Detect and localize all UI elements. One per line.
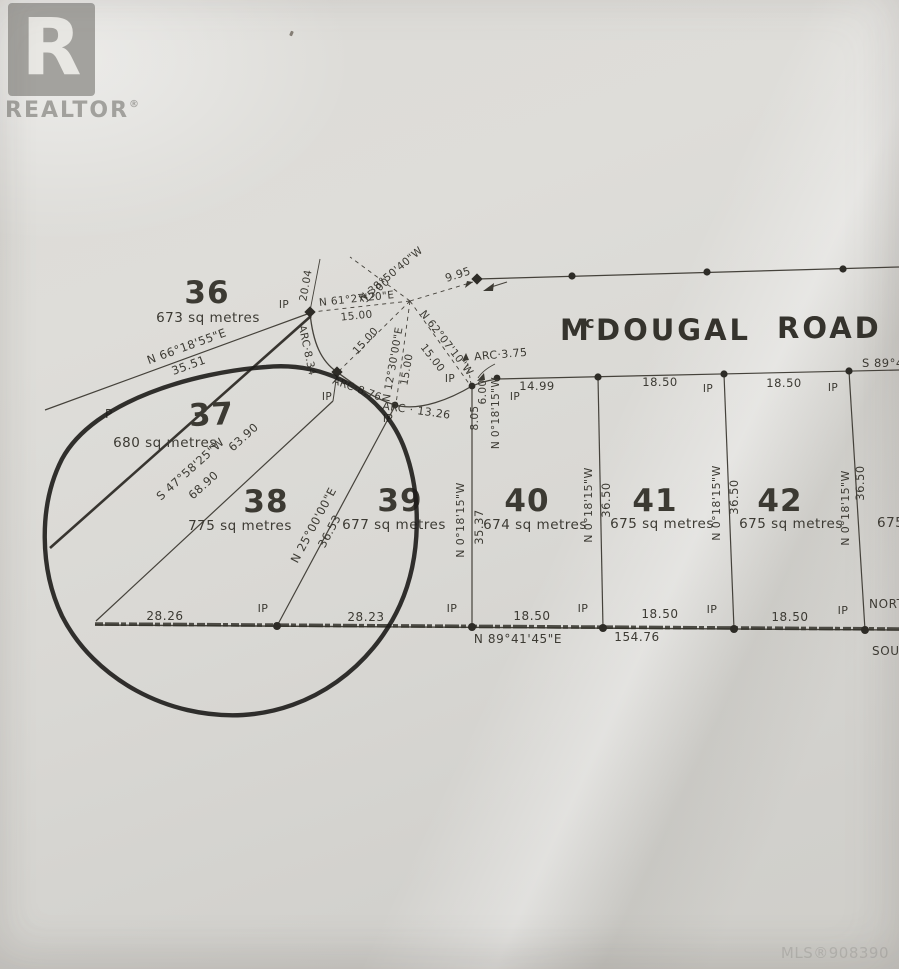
tie-distance-1: 6.00 [477,380,489,405]
boundary-4142-distance: 36.50 [727,479,741,514]
lot-43-area-partial: 675 [877,515,899,531]
pin [594,373,601,380]
boundary-4041-bearing: N 0°18'15"W [582,467,595,543]
road-name-road: ROAD [777,311,882,345]
pin [599,624,607,632]
pin [839,265,846,272]
road-name-c: c [585,313,594,332]
south-seg-1: 28.26 [146,609,183,623]
ip-marker: IP [703,383,713,395]
tie-bearing: N 0°18'15"W [490,377,502,450]
spoke-northeast [410,282,473,301]
ip-marker: IP [510,391,520,403]
arc-375-pointer [478,364,495,378]
road-north-line [477,267,899,279]
ip-marker: IP [258,602,269,615]
spoke-south-radius: 15.00 [398,353,415,387]
lot-38-number: 38 [243,484,288,520]
south-seg-3: 18.50 [513,609,550,623]
frontage-41: 18.50 [642,375,677,389]
tie-distance-2: 8.05 [469,406,481,431]
road-arrowhead [483,283,494,291]
ip-marker: IP [279,299,289,311]
mls-watermark: MLS®908390 [781,944,889,962]
lot-41-number: 41 [632,483,677,519]
pin [469,383,476,390]
boundary-4142-bearing: N 0°18'15"W [710,465,723,541]
pin [568,272,575,279]
lot-36-area: 673 sq metres [156,310,260,326]
boundary-4243-distance: 36.50 [853,465,867,500]
south-seg-5: 18.50 [771,610,808,624]
road-bearing-clipped: S 89°4 [862,356,899,370]
lot-41-area: 675 sq metres [610,516,714,532]
ip-marker: IP [447,602,458,615]
spoke-east-radius: 15.00 [340,308,373,323]
boundary-3940-bearing: N 0°18'15"W [454,482,467,558]
edge-label-south-clipped: SOUT [872,644,899,658]
pin [845,367,852,374]
pin [861,626,869,634]
frontage-40: 14.99 [519,379,554,393]
lot-38-area: 775 sq metres [188,518,292,534]
lot-37-number: 37 [188,396,235,434]
spoke-arrowhead [465,281,473,288]
monument-road-start [471,273,482,284]
monument-lot36-corner [304,306,315,317]
pin [468,623,476,631]
boundary-4041-distance: 36.50 [599,482,613,517]
lot36-tick-distance: 20.04 [297,269,314,303]
arc-375-label: ARC·3.75 [473,346,527,364]
lot-40-area: 674 sq metres [483,517,587,533]
frontage-42: 18.50 [766,376,801,390]
ip-marker: IP [445,373,455,385]
boundary-3940-distance: 35.37 [472,509,486,544]
lot-39-area: 677 sq metres [342,517,446,533]
ip-marker: IP [707,603,718,616]
lot-36-number: 36 [184,275,229,311]
survey-plat-drawing: M c DOUGAL ROAD 36 673 sq metres 37 680 … [0,0,899,969]
scanned-plat-photo: { "branding": {"logo_letter": "R", "logo… [0,0,899,969]
pin [720,370,727,377]
south-seg-4: 18.50 [641,607,678,621]
spoke-southwest-radius: 15.00 [351,325,381,357]
south-seg-2: 28.23 [347,610,384,624]
south-boundary-bearing: N 89°41'45"E [474,632,562,646]
ip-marker: IP [828,382,838,394]
road-name-dougal: DOUGAL [596,313,751,347]
edge-label-north-clipped: NORT [869,597,899,611]
ip-marker: IP [838,604,849,617]
lot-42-number: 42 [757,483,802,519]
pin [730,625,738,633]
lot-42-area: 675 sq metres [739,516,843,532]
boundary-4243-bearing: N 0°18'15"W [839,470,852,546]
south-boundary-total: 154.76 [614,630,660,644]
pin [703,268,710,275]
lot-40-number: 40 [504,483,549,519]
road-south-line [497,370,899,379]
ip-marker: IP [578,602,589,615]
pin [273,622,281,630]
ip-marker: IP [322,391,332,403]
south-boundary-hatch [95,624,899,629]
